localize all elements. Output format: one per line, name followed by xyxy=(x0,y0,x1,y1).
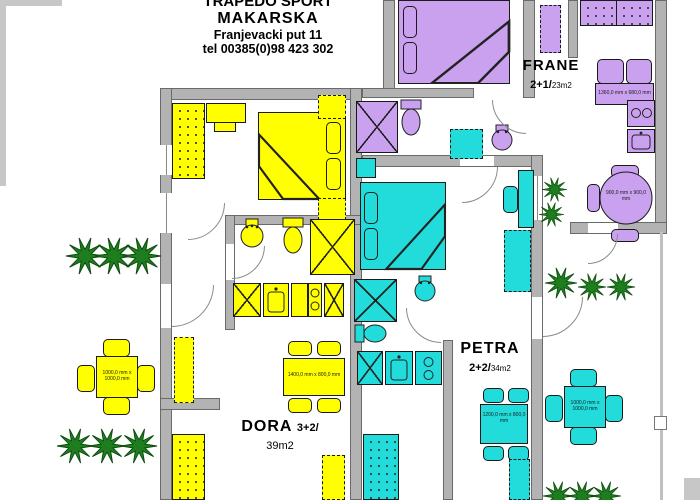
door-swing-arc-icon xyxy=(232,246,265,279)
chair xyxy=(545,395,563,422)
plant-icon xyxy=(542,177,567,202)
burners-icon xyxy=(309,284,321,316)
toilet-icon xyxy=(399,99,423,137)
table-dimension-label: 1400,0 mm x 800,0 mm xyxy=(284,372,344,378)
chair xyxy=(317,398,341,413)
plant-icon xyxy=(545,267,577,299)
tv xyxy=(214,122,236,132)
toilet-icon xyxy=(281,217,305,255)
nightstand xyxy=(356,158,376,178)
tv-cabinet xyxy=(206,103,246,123)
kitchen-sink-unit xyxy=(385,351,413,385)
plant-icon xyxy=(539,202,564,227)
wall xyxy=(362,88,474,98)
chair xyxy=(137,365,155,392)
floor-plan: 1400,0 mm x 800,0 mm 1000,0 mm x 1000,0 … xyxy=(0,0,700,500)
washbasin-icon xyxy=(411,276,439,304)
kitchen-cabinet xyxy=(357,351,383,385)
washbasin-icon xyxy=(236,219,268,249)
stove xyxy=(415,351,442,385)
chair xyxy=(605,395,623,422)
plant-icon xyxy=(89,428,125,464)
door-swing-arc-icon xyxy=(188,203,225,240)
apartment-capacity: 2+1/ xyxy=(530,79,552,91)
sink-icon xyxy=(264,284,288,316)
border-block-bottom-right xyxy=(684,478,700,500)
sink-icon xyxy=(386,352,412,384)
stove xyxy=(308,283,322,317)
border-strip-left xyxy=(0,0,6,186)
table-dimension-label: 1000,0 mm x 1000,0 mm xyxy=(97,370,137,383)
table-dimension-label: 1200,0 mm x 800,0 mm xyxy=(481,412,527,425)
apartment-area: 39m2 xyxy=(266,440,294,452)
loveseat xyxy=(616,0,653,26)
stove xyxy=(627,100,655,127)
sofa-dimension-label: 1360,0 mm x 680,0 mm xyxy=(596,90,653,96)
plant-icon xyxy=(121,428,157,464)
apartment-name: DORA xyxy=(241,418,292,435)
wardrobe xyxy=(540,5,561,53)
kitchen-sink-unit xyxy=(263,283,289,317)
kitchen-sink-unit xyxy=(627,129,655,153)
chair xyxy=(570,427,597,445)
chair xyxy=(570,369,597,387)
sofa-cushion xyxy=(626,59,652,84)
sofa xyxy=(172,103,205,179)
sofa xyxy=(172,434,205,500)
wardrobe xyxy=(504,230,531,292)
cabinet xyxy=(509,459,530,500)
pillow xyxy=(364,192,378,224)
chair xyxy=(483,446,504,461)
chair xyxy=(103,397,130,415)
wall xyxy=(383,0,395,92)
plant-icon xyxy=(607,273,635,301)
cabinet xyxy=(322,455,345,500)
door-opening xyxy=(161,284,171,328)
apartment-area: 34m2 xyxy=(491,364,511,373)
chair xyxy=(288,341,312,356)
door-swing-arc-icon xyxy=(172,285,214,327)
desk xyxy=(518,170,534,228)
company-header: TRAPEDO SPORT MAKARSKA Franjevacki put 1… xyxy=(160,0,376,56)
apartment-label-frane: FRANE 2+1/23m2 xyxy=(505,57,597,93)
company-phone: tel 00385(0)98 423 302 xyxy=(160,42,376,56)
company-name: TRAPEDO SPORT xyxy=(160,0,376,10)
wardrobe xyxy=(318,95,346,119)
chair xyxy=(103,339,130,357)
border-strip-top xyxy=(0,0,62,6)
plant-icon xyxy=(57,428,93,464)
plant-icon xyxy=(591,481,621,500)
sofa xyxy=(363,434,399,500)
pillow xyxy=(326,122,341,154)
pillow xyxy=(364,228,378,260)
door-swing-arc-icon xyxy=(588,234,618,264)
apartment-capacity: 3+2/ xyxy=(297,422,319,434)
chair xyxy=(508,388,529,403)
apartment-label-petra: PETRA 2+2/34m2 xyxy=(448,340,532,376)
pillow xyxy=(403,6,417,38)
toilet-icon xyxy=(354,323,388,344)
apartment-name: FRANE xyxy=(523,57,580,74)
company-address: Franjevacki put 11 xyxy=(160,28,376,42)
wardrobe xyxy=(318,198,346,220)
shower xyxy=(354,279,397,322)
apartment-area: 23m2 xyxy=(552,81,572,90)
wardrobe xyxy=(174,337,194,403)
door-swing-arc-icon xyxy=(543,297,583,337)
table-dimension-label: 900,0 mm x 900,0 mm xyxy=(604,190,648,203)
apartment-label-dora: DORA 3+2/ 39m2 xyxy=(222,418,338,454)
wall xyxy=(568,0,578,58)
door-swing-arc-icon xyxy=(462,167,498,203)
pillow xyxy=(326,158,341,190)
chair xyxy=(288,398,312,413)
plant-icon xyxy=(123,237,161,275)
company-city: MAKARSKA xyxy=(160,10,376,28)
apartment-capacity: 2+2/ xyxy=(469,362,491,374)
table-dimension-label: 1000,0 mm x 1000,0 mm xyxy=(565,400,605,413)
chair xyxy=(503,186,518,213)
door-swing-arc-icon xyxy=(492,100,526,134)
door-opening xyxy=(532,297,542,339)
sofa-cushion xyxy=(597,59,624,84)
sink-icon xyxy=(628,130,654,152)
chair xyxy=(77,365,95,392)
shower xyxy=(356,101,398,153)
apartment-name: PETRA xyxy=(460,340,519,357)
chair xyxy=(483,388,504,403)
cabinet xyxy=(450,129,483,159)
burners-icon xyxy=(416,352,441,384)
pillow xyxy=(403,42,417,74)
wall xyxy=(655,0,667,232)
fence-gate-handle xyxy=(654,416,667,430)
kitchen-cabinet xyxy=(324,283,344,317)
shower xyxy=(310,219,355,275)
terrace-fence-line xyxy=(660,232,663,500)
window xyxy=(157,193,175,233)
loveseat xyxy=(580,0,617,26)
burners-icon xyxy=(628,101,654,126)
chair xyxy=(317,341,341,356)
kitchen-cabinet xyxy=(233,283,261,317)
door-swing-arc-icon xyxy=(406,308,441,343)
kitchen-cabinet xyxy=(291,283,308,317)
